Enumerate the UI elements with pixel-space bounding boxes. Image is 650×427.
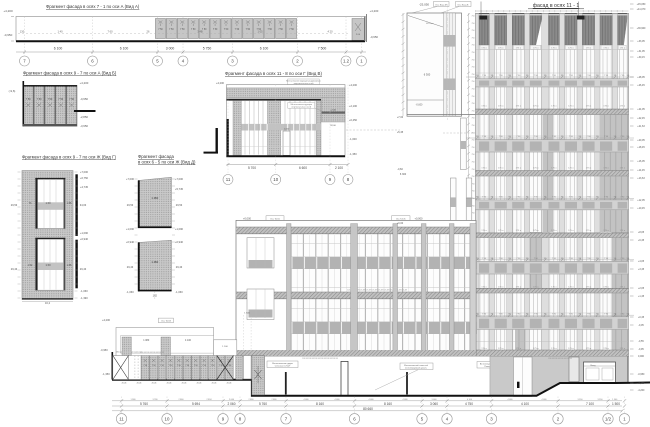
svg-text:Фрагмент фасада в осях 7 - 1 п: Фрагмент фасада в осях 7 - 1 по оси А (В… (46, 4, 140, 9)
svg-text:Фрагмент фасада в осях 11 - 8: Фрагмент фасада в осях 11 - 8 по оси Г (… (225, 71, 322, 76)
svg-text:175 в: 175 в (551, 230, 557, 232)
svg-text:175 в: 175 в (551, 106, 557, 108)
svg-text:Вход: Вход (591, 365, 597, 367)
svg-text:124.58 124.58 124.58 124.58: 124.58 124.58 124.58 124.58 (140, 352, 163, 354)
svg-text:124.58 124.58 124.58 124.58: 124.58 124.58 124.58 124.58 (548, 358, 571, 360)
svg-text:7 50: 7 50 (219, 365, 223, 367)
svg-text:+10,45: +10,45 (637, 207, 645, 210)
svg-text:175 в: 175 в (568, 230, 574, 232)
svg-text:26,06: 26,06 (212, 383, 217, 385)
svg-text:750: 750 (472, 67, 475, 69)
svg-text:175 в: 175 в (603, 286, 609, 288)
svg-text:750: 750 (472, 16, 475, 18)
svg-text:+33,05: +33,05 (637, 40, 645, 43)
svg-text:7 500: 7 500 (318, 47, 327, 51)
svg-text:+2,100: +2,100 (349, 104, 358, 108)
svg-text:7 50: 7 50 (158, 29, 163, 31)
svg-text:750: 750 (472, 140, 475, 142)
svg-text:7 50: 7 50 (194, 365, 198, 367)
svg-text:92,06: 92,06 (330, 125, 336, 127)
svg-text:+4,745: +4,745 (80, 185, 89, 189)
svg-text:-0,950: -0,950 (370, 35, 378, 39)
svg-text:1 4Б0: 1 4Б0 (151, 196, 158, 200)
svg-text:+4,200: +4,200 (80, 81, 89, 85)
svg-text:29,43: 29,43 (127, 265, 134, 269)
svg-text:750: 750 (472, 59, 475, 61)
svg-text:7 100: 7 100 (586, 402, 594, 406)
svg-text:1 40: 1 40 (57, 30, 63, 34)
svg-text:+0,940: +0,940 (80, 237, 89, 241)
svg-text:175 в: 175 в (533, 348, 539, 350)
svg-text:29,53: 29,53 (127, 203, 134, 207)
svg-text:175 в: 175 в (551, 348, 557, 350)
svg-text:4 750: 4 750 (465, 402, 473, 406)
svg-text:+0,45: +0,45 (638, 316, 645, 319)
svg-text:1 100: 1 100 (222, 346, 228, 348)
svg-text:+6,45: +6,45 (638, 239, 645, 242)
svg-text:2 100: 2 100 (335, 166, 343, 170)
svg-text:6 100: 6 100 (54, 47, 63, 51)
svg-text:26,06: 26,06 (182, 383, 187, 385)
svg-text:1 52: 1 52 (28, 264, 33, 267)
svg-text:6 100: 6 100 (120, 47, 129, 51)
svg-text:175 в: 175 в (498, 47, 504, 49)
svg-text:7 50: 7 50 (224, 29, 229, 31)
svg-text:175 в: 175 в (568, 47, 574, 49)
svg-text:175 в: 175 в (481, 106, 487, 108)
svg-text:+7,000: +7,000 (175, 177, 184, 181)
svg-text:6 300: 6 300 (400, 173, 407, 176)
svg-text:+8,05: +8,05 (638, 231, 645, 234)
svg-text:+2,16: +2,16 (330, 110, 336, 112)
svg-text:7 50: 7 50 (58, 98, 63, 101)
svg-text:5 694: 5 694 (192, 402, 200, 406)
svg-text:175 в: 175 в (516, 286, 522, 288)
svg-text:3 060: 3 060 (431, 399, 437, 401)
svg-text:175 в: 175 в (603, 348, 609, 350)
svg-text:+36,900: +36,900 (637, 27, 646, 30)
svg-text:1 88: 1 88 (67, 202, 72, 205)
svg-text:-0,950: -0,950 (638, 373, 645, 376)
svg-text:+4,200: +4,200 (3, 9, 13, 13)
svg-text:175 в: 175 в (498, 168, 504, 170)
svg-text:-1,390: -1,390 (80, 296, 88, 300)
svg-text:2 880: 2 880 (271, 399, 277, 401)
svg-text:+21,63: +21,63 (637, 125, 645, 128)
svg-text:175 в: 175 в (533, 230, 539, 232)
svg-text:175 в: 175 в (568, 106, 574, 108)
svg-text:8 160: 8 160 (384, 402, 392, 406)
svg-text:10: 10 (273, 177, 278, 182)
svg-text:175 в: 175 в (533, 168, 539, 170)
svg-text:+24,05: +24,05 (637, 108, 645, 111)
svg-text:+1,090: +1,090 (175, 227, 184, 231)
svg-text:7 50: 7 50 (278, 29, 283, 31)
svg-text:+4,200: +4,200 (349, 83, 358, 87)
svg-text:+5,45: +5,45 (397, 131, 404, 134)
svg-text:29,43: 29,43 (80, 267, 87, 271)
svg-text:1 500: 1 500 (244, 313, 250, 315)
svg-text:175 в: 175 в (620, 168, 626, 170)
svg-text:175 в: 175 в (620, 106, 626, 108)
svg-text:-2,100: -2,100 (638, 382, 645, 385)
svg-text:175 в: 175 в (533, 286, 539, 288)
svg-text:1 88: 1 88 (67, 264, 72, 267)
svg-text:Металлический навесной: Металлический навесной (404, 364, 428, 367)
svg-text:3 550: 3 550 (577, 399, 583, 401)
svg-text:-0,95: -0,95 (638, 348, 644, 351)
svg-text:175 в: 175 в (481, 47, 487, 49)
svg-text:(-9,6): (-9,6) (9, 89, 16, 93)
svg-text:4 080: 4 080 (507, 399, 513, 401)
svg-text:1 60: 1 60 (45, 201, 51, 205)
svg-text:+5,745: +5,745 (175, 187, 184, 191)
svg-text:750: 750 (472, 103, 475, 105)
svg-text:-2,850: -2,850 (80, 115, 88, 119)
svg-text:175 в: 175 в (498, 286, 504, 288)
svg-text:вертикальных осей: вертикальных осей (291, 106, 311, 109)
svg-text:750: 750 (472, 132, 475, 134)
svg-text:175 в: 175 в (481, 230, 487, 232)
svg-text:3 000: 3 000 (166, 47, 175, 51)
svg-text:29,43: 29,43 (176, 265, 183, 269)
svg-text:-3,950: -3,950 (80, 124, 88, 128)
svg-text:+31,05: +31,05 (637, 50, 645, 53)
svg-text:175 в: 175 в (603, 106, 609, 108)
svg-text:-1,000: -1,000 (349, 137, 357, 141)
svg-text:3 550: 3 550 (597, 399, 603, 401)
svg-text:175 в: 175 в (498, 348, 504, 350)
svg-text:750: 750 (472, 37, 475, 39)
svg-text:5 700: 5 700 (248, 166, 256, 170)
svg-text:175 в: 175 в (481, 348, 487, 350)
svg-text:750: 750 (472, 52, 475, 54)
svg-text:7 50: 7 50 (267, 29, 272, 31)
svg-text:750: 750 (472, 23, 475, 25)
svg-text:2 834: 2 834 (206, 399, 212, 401)
svg-text:7 50: 7 50 (191, 29, 196, 31)
svg-text:+45,050: +45,050 (637, 3, 646, 6)
svg-text:1 4Б0: 1 4Б0 (151, 260, 158, 264)
svg-text:7 50: 7 50 (26, 98, 31, 101)
svg-text:Фрагмент фасада: Фрагмент фасада (138, 154, 174, 159)
svg-text:+0,940: +0,940 (126, 240, 135, 244)
svg-text:2 060: 2 060 (229, 399, 235, 401)
svg-text:750: 750 (472, 154, 475, 156)
svg-text:+4,200: +4,200 (370, 9, 379, 13)
svg-text:+1,090: +1,090 (126, 227, 135, 231)
svg-text:-4,200: -4,200 (638, 389, 645, 392)
svg-text:7 50: 7 50 (47, 98, 52, 101)
svg-text:750: 750 (472, 110, 475, 112)
svg-text:1 980: 1 980 (130, 399, 136, 401)
svg-text:124.58 124.58 124.58 124.58: 124.58 124.58 124.58 124.58 124.58 124.5… (302, 358, 337, 360)
svg-text:175 в: 175 в (516, 348, 522, 350)
svg-text:+16,05: +16,05 (637, 160, 645, 163)
svg-text:7 50: 7 50 (69, 98, 74, 101)
svg-text:34,03: 34,03 (80, 203, 87, 207)
svg-text:4 080: 4 080 (368, 399, 374, 401)
svg-text:6 600: 6 600 (299, 166, 307, 170)
svg-text:175 в: 175 в (620, 230, 626, 232)
svg-text:7 50: 7 50 (160, 365, 164, 367)
svg-text:-0,05: -0,05 (638, 324, 644, 327)
svg-text:7 50: 7 50 (202, 29, 207, 31)
svg-text:+0,00: +0,00 (397, 222, 404, 225)
svg-text:-25,050: -25,050 (419, 3, 430, 7)
svg-text:+13,63: +13,63 (637, 177, 645, 180)
svg-text:7 50: 7 50 (37, 98, 42, 101)
svg-text:+1,090: +1,090 (80, 231, 89, 235)
svg-text:-1,350: -1,350 (349, 152, 357, 156)
svg-text:7 50: 7 50 (152, 365, 156, 367)
svg-text:7 50: 7 50 (289, 29, 294, 31)
svg-text:+3,45: +3,45 (638, 268, 645, 271)
svg-text:5 760: 5 760 (259, 402, 267, 406)
svg-text:-0,60: -0,60 (397, 168, 403, 171)
svg-text:+18,45: +18,45 (637, 146, 645, 149)
svg-text:175 в: 175 в (586, 230, 592, 232)
svg-text:+14,45: +14,45 (637, 169, 645, 172)
svg-text:29,53: 29,53 (176, 203, 183, 207)
svg-text:175 в: 175 в (533, 47, 539, 49)
svg-text:4 100: 4 100 (185, 339, 192, 342)
svg-text:175 в: 175 в (551, 286, 557, 288)
svg-text:7 50: 7 50 (227, 365, 231, 367)
svg-text:7 50: 7 50 (180, 29, 185, 31)
svg-text:+0,940: +0,940 (175, 240, 184, 244)
svg-text:6 300: 6 300 (424, 73, 431, 77)
svg-text:750: 750 (472, 118, 475, 120)
svg-text:175 в: 175 в (568, 286, 574, 288)
svg-text:11: 11 (226, 177, 231, 182)
svg-text:-0,950: -0,950 (80, 97, 88, 101)
svg-text:175 в: 175 в (516, 106, 522, 108)
svg-text:1 080: 1 080 (143, 339, 150, 342)
svg-text:1/2: 1/2 (605, 416, 612, 421)
svg-text:1 500: 1 500 (612, 399, 618, 401)
svg-text:7 50: 7 50 (235, 29, 240, 31)
svg-text:+12,05: +12,05 (637, 199, 645, 202)
svg-text:-0,950: -0,950 (4, 33, 13, 37)
svg-text:Фрагмент фасада в осях 9 - 7 п: Фрагмент фасада в осях 9 - 7 по оси А (В… (23, 71, 117, 76)
svg-text:7 50: 7 50 (185, 365, 189, 367)
svg-text:175 в: 175 в (551, 47, 557, 49)
svg-text:вентилируемый цоколь: вентилируемый цоколь (405, 367, 427, 370)
svg-text:175 в: 175 в (481, 286, 487, 288)
svg-text:+41,070: +41,070 (637, 8, 646, 11)
svg-text:1,060: 1,060 (284, 129, 290, 131)
svg-text:7 50: 7 50 (211, 365, 215, 367)
svg-text:175 в: 175 в (620, 348, 626, 350)
svg-text:1 05: 1 05 (257, 30, 263, 34)
svg-text:175 в: 175 в (620, 47, 626, 49)
svg-text:-0,950: -0,950 (100, 348, 108, 352)
svg-text:1 60: 1 60 (45, 263, 51, 267)
svg-text:7 50: 7 50 (169, 29, 174, 31)
svg-text:+7,00: +7,00 (397, 116, 404, 119)
svg-text:4 100: 4 100 (467, 399, 473, 401)
svg-text:175 в: 175 в (586, 106, 592, 108)
svg-text:+4,200: +4,200 (102, 318, 111, 322)
svg-text:7 50: 7 50 (177, 365, 181, 367)
svg-text:+4,200: +4,200 (216, 81, 225, 85)
svg-text:7 50: 7 50 (143, 365, 147, 367)
svg-text:26,06: 26,06 (152, 383, 157, 385)
svg-text:1 500: 1 500 (612, 402, 620, 406)
svg-text:175 в: 175 в (603, 47, 609, 49)
svg-text:750: 750 (472, 147, 475, 149)
svg-text:6 100: 6 100 (260, 47, 269, 51)
svg-text:750: 750 (472, 169, 475, 171)
svg-text:175 в: 175 в (516, 47, 522, 49)
svg-text:+2,05: +2,05 (638, 287, 645, 290)
svg-text:+22,45: +22,45 (637, 117, 645, 120)
svg-text:11: 11 (119, 416, 124, 421)
svg-text:-0,55: -0,55 (638, 340, 644, 343)
svg-text:+6,750: +6,750 (80, 176, 89, 180)
svg-text:750: 750 (472, 89, 475, 91)
svg-text:8 160: 8 160 (316, 402, 324, 406)
svg-text:175 в: 175 в (498, 230, 504, 232)
svg-text:-1,060: -1,060 (80, 289, 88, 293)
svg-text:2 860: 2 860 (178, 399, 184, 401)
svg-text:в осях 6 - 5 по оси Ж (Вид Д): в осях 6 - 5 по оси Ж (Вид Д) (138, 160, 196, 165)
svg-text:29,43: 29,43 (11, 267, 18, 271)
svg-text:Ось Тип.В: Ось Тип.В (161, 321, 171, 323)
svg-text:80 660: 80 660 (363, 407, 373, 411)
svg-text:175 в: 175 в (481, 168, 487, 170)
svg-text:+0,450: +0,450 (349, 118, 358, 122)
svg-text:4 080: 4 080 (334, 399, 340, 401)
svg-text:+7,000: +7,000 (126, 177, 135, 181)
svg-text:-1,060: -1,060 (126, 290, 134, 294)
svg-text:750: 750 (472, 74, 475, 76)
svg-text:7 50: 7 50 (169, 365, 173, 367)
svg-text:26,06: 26,06 (137, 383, 142, 385)
svg-text:60 1всь: 60 1всь (426, 23, 434, 25)
svg-text:7 50: 7 50 (202, 365, 206, 367)
svg-text:-1,350: -1,350 (102, 372, 110, 376)
svg-text:7 50: 7 50 (246, 29, 251, 31)
svg-text:3 060: 3 060 (430, 402, 438, 406)
svg-text:2 060: 2 060 (228, 402, 236, 406)
svg-text:+0,000: +0,000 (243, 217, 252, 221)
svg-text:130: 130 (20, 30, 25, 34)
svg-text:4 080: 4 080 (303, 399, 309, 401)
svg-text:750: 750 (472, 45, 475, 47)
svg-text:175 в: 175 в (603, 168, 609, 170)
svg-text:175 в: 175 в (568, 348, 574, 350)
svg-text:Ось Баш.М: Ось Баш.М (435, 4, 447, 6)
svg-text:175 в: 175 в (586, 168, 592, 170)
svg-text:26,06: 26,06 (122, 383, 127, 385)
svg-text:7 60: 7 60 (107, 30, 113, 34)
svg-text:750: 750 (472, 125, 475, 127)
svg-text:26,06: 26,06 (227, 383, 232, 385)
svg-text:Сетчатые 0,70м²: Сетчатые 0,70м² (275, 365, 291, 368)
svg-text:10: 10 (165, 416, 170, 421)
svg-text:2 880: 2 880 (248, 399, 254, 401)
svg-text:1.2: 1.2 (343, 59, 350, 64)
svg-text:175 в: 175 в (586, 47, 592, 49)
svg-text:3 780: 3 780 (152, 399, 158, 401)
svg-text:175 в: 175 в (586, 286, 592, 288)
svg-text:фасад в осях 11 - 1: фасад в осях 11 - 1 (533, 3, 580, 9)
svg-text:175 в: 175 в (603, 230, 609, 232)
svg-text:175 в: 175 в (620, 286, 626, 288)
svg-text:+20,05: +20,05 (637, 139, 645, 142)
svg-text:175 в: 175 в (551, 168, 557, 170)
svg-text:4 080: 4 080 (541, 399, 547, 401)
svg-text:4 20: 4 20 (327, 30, 333, 34)
svg-text:+26,45: +26,45 (637, 84, 645, 87)
svg-text:4 100: 4 100 (521, 402, 529, 406)
svg-text:175 в: 175 в (568, 168, 574, 170)
svg-text:29,53: 29,53 (11, 203, 18, 207)
svg-text:Фрагмент фасада в осях 9 - 7 п: Фрагмент фасада в осях 9 - 7 по оси Ж (В… (22, 155, 116, 160)
svg-text:+28,05: +28,05 (637, 76, 645, 79)
svg-text:175 в: 175 в (586, 348, 592, 350)
svg-text:750: 750 (472, 162, 475, 164)
svg-text:182: 182 (153, 294, 158, 298)
svg-text:-0,600: -0,600 (416, 103, 423, 106)
svg-text:175 в: 175 в (498, 106, 504, 108)
svg-text:26,06: 26,06 (197, 383, 202, 385)
svg-text:26,06: 26,06 (167, 383, 172, 385)
svg-text:3 4B: 3 4B (197, 30, 203, 34)
svg-text:750: 750 (472, 30, 475, 32)
svg-text:+1,45: +1,45 (638, 295, 645, 298)
svg-text:175 в: 175 в (533, 106, 539, 108)
svg-text:+4,05: +4,05 (638, 260, 645, 263)
svg-text:4 080: 4 080 (402, 399, 408, 401)
svg-text:7 50: 7 50 (213, 29, 218, 31)
svg-text:Ось Баш.Б: Ось Баш.Б (458, 4, 470, 6)
svg-text:+0,000: +0,000 (414, 217, 423, 221)
svg-text:175 в: 175 в (516, 168, 522, 170)
svg-text:0,000: 0,000 (638, 355, 645, 358)
svg-text:5 750: 5 750 (203, 47, 212, 51)
svg-text:5 760: 5 760 (140, 402, 148, 406)
svg-text:750: 750 (472, 81, 475, 83)
svg-text:175 в: 175 в (516, 230, 522, 232)
svg-text:750: 750 (472, 96, 475, 98)
svg-text:-1,060: -1,060 (175, 290, 183, 294)
svg-text:+7,000: +7,000 (80, 170, 89, 174)
svg-text:+30,15: +30,15 (637, 56, 645, 59)
